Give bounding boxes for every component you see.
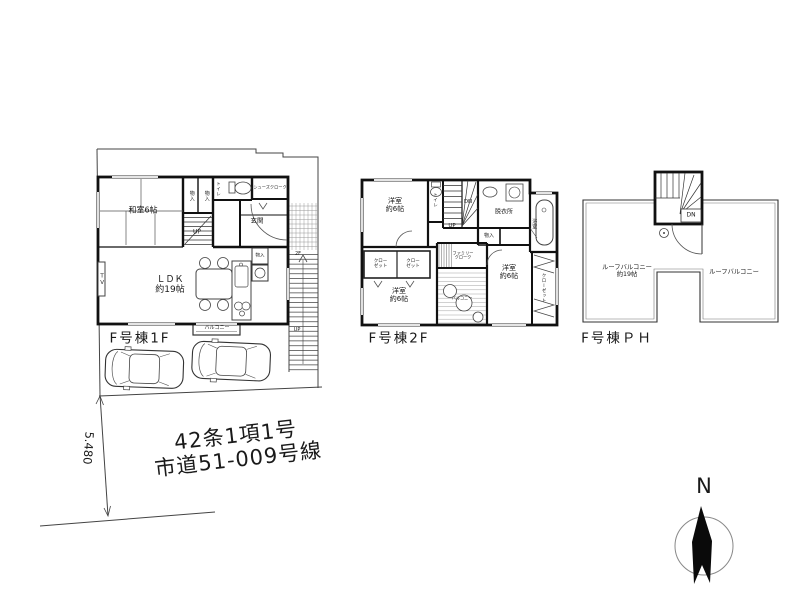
entrance-label: 玄関	[251, 217, 264, 224]
storage-label-2f: 物入	[484, 234, 494, 240]
shoe-closet-label: シューズクローク	[253, 186, 286, 191]
tv-label: TV	[99, 274, 105, 287]
dressing-room-label: 脱衣所	[495, 209, 513, 216]
boundary-dimension: 5.480	[80, 431, 95, 465]
exterior-stairs	[289, 250, 318, 372]
floor-plan-sheet: 和室6帖 ＬＤＫ 約19帖 TV 物入 物入 トイレ シューズクローク 玄関 U…	[0, 0, 800, 600]
room-label-bed2: 洋室 約6帖	[390, 288, 408, 304]
compass	[675, 506, 733, 584]
closet-label-2: クロー ゼット	[406, 259, 420, 269]
floor1-name: F号棟1F	[109, 331, 170, 346]
porch-tiles	[289, 203, 318, 250]
balcony-label-2f: バルコニー	[452, 297, 473, 302]
roof-balcony-right-label: ルーフバルコニー	[709, 268, 759, 275]
room-label-ldk: ＬＤＫ 約19帖	[155, 275, 184, 295]
stairs-dn-label-ph: DN	[686, 212, 695, 219]
balcony-label-1f: バルコニー	[205, 326, 230, 332]
stairs-up-label-2f: UP	[448, 222, 455, 228]
toilet-fixture-1f	[229, 182, 251, 194]
room-label-bed3: 洋室 約6帖	[500, 265, 518, 281]
room-label-washitsu: 和室6帖	[128, 207, 157, 216]
bath-label: 浴室	[531, 219, 537, 230]
closet-label-3: クローゼット	[541, 273, 546, 303]
closet-label-1: クロー ゼット	[374, 259, 388, 269]
floorph-name: F号棟ＰＨ	[581, 331, 653, 346]
room-label-bed1: 洋室 約6帖	[386, 198, 404, 214]
floor2-name: F号棟2F	[368, 331, 429, 346]
compass-north-label: N	[696, 475, 712, 499]
ph-door-arc	[672, 224, 702, 254]
roof-balcony-left-label: ルーフバルコニー 約19帖	[602, 264, 652, 278]
toilet-label-2f: トイレ	[432, 193, 437, 208]
stairs-dn-label-2f: DN	[464, 199, 472, 205]
storage-label-2: 物入	[203, 191, 209, 202]
storage-label-1: 物入	[188, 191, 194, 202]
stairs-up-label-1f: UP	[193, 230, 201, 237]
kitchen-counter	[232, 261, 251, 320]
floorph-plan	[583, 172, 778, 322]
family-closet-label: ファミリー クローク	[453, 251, 474, 260]
storage-label-3: 物入	[256, 253, 265, 258]
to-2f-label: 2F	[295, 252, 301, 258]
toilet-label-1f: トイレ	[215, 182, 220, 197]
ext-stairs-up-label: UP	[294, 328, 301, 334]
